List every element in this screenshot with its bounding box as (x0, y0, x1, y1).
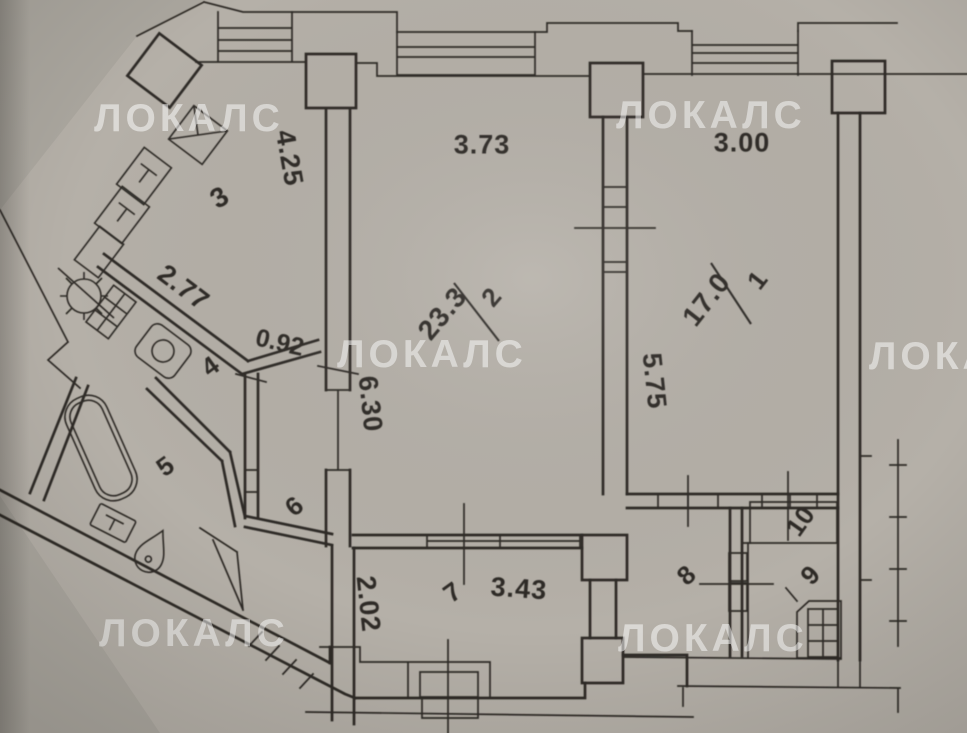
floor-plan-svg: 4.25 3.73 3.00 2.77 0.92 6.30 5.75 2.02 … (0, 0, 967, 733)
left-edge-shade (0, 0, 30, 733)
floor-plan-photo: 4.25 3.73 3.00 2.77 0.92 6.30 5.75 2.02 … (0, 0, 967, 733)
vignette-overlay (0, 0, 967, 733)
